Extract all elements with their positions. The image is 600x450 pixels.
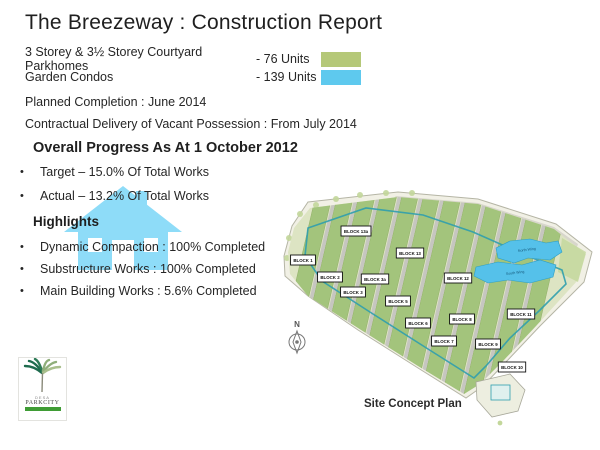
block-label: BLOCK 7	[432, 336, 457, 346]
condos-color-swatch	[321, 70, 361, 85]
block-label: BLOCK 6	[406, 318, 431, 328]
block-label: BLOCK 13	[396, 248, 423, 258]
block-label: BLOCK 1	[291, 255, 316, 265]
map-caption: Site Concept Plan	[364, 398, 462, 410]
legend-units: - 76 Units	[256, 52, 321, 66]
planned-completion-line: Planned Completion : June 2014	[25, 95, 206, 109]
block-label: BLOCK 13a	[341, 226, 371, 236]
block-label: BLOCK 9	[476, 339, 501, 349]
bullet-text: Target – 15.0% Of Total Works	[40, 165, 209, 189]
svg-text:BLOCK 13a: BLOCK 13a	[344, 229, 369, 234]
bullet-icon: •	[20, 189, 40, 213]
slide: The Breezeway : Construction Report 3 St…	[0, 0, 600, 450]
svg-text:BLOCK 13: BLOCK 13	[399, 251, 421, 256]
svg-text:BLOCK 2: BLOCK 2	[320, 275, 340, 280]
bullet-icon: •	[20, 262, 40, 284]
bullet-text: Actual – 13.2% Of Total Works	[40, 189, 209, 213]
bullet-item: • Dynamic Compaction : 100% Completed	[20, 240, 265, 262]
contractual-delivery-line: Contractual Delivery of Vacant Possessio…	[25, 117, 357, 131]
legend-row-parkhomes: 3 Storey & 3½ Storey Courtyard Parkhomes…	[25, 50, 361, 68]
bullet-icon: •	[20, 284, 40, 306]
parkhomes-color-swatch	[321, 52, 361, 67]
svg-text:BLOCK 11: BLOCK 11	[510, 312, 532, 317]
legend-label: Garden Condos	[25, 70, 256, 84]
compass-icon: N	[289, 320, 305, 353]
svg-text:BLOCK 5: BLOCK 5	[388, 299, 408, 304]
bullet-text: Main Building Works : 5.6% Completed	[40, 284, 257, 306]
block-label: BLOCK 5	[386, 296, 411, 306]
svg-text:BLOCK 12: BLOCK 12	[447, 276, 469, 281]
svg-text:BLOCK 10: BLOCK 10	[501, 365, 523, 370]
legend-units: - 139 Units	[256, 70, 321, 84]
highlights-bullets: • Dynamic Compaction : 100% Completed • …	[20, 240, 265, 306]
block-label: BLOCK 2	[318, 272, 343, 282]
block-label: BLOCK 8	[450, 314, 475, 324]
bullet-item: • Main Building Works : 5.6% Completed	[20, 284, 265, 306]
bullet-text: Substructure Works : 100% Completed	[40, 262, 256, 284]
bullet-item: • Target – 15.0% Of Total Works	[20, 165, 209, 189]
annex-building	[476, 374, 525, 425]
overall-progress-heading: Overall Progress As At 1 October 2012	[33, 140, 298, 156]
svg-text:BLOCK 8: BLOCK 8	[452, 317, 472, 322]
progress-bullets: • Target – 15.0% Of Total Works • Actual…	[20, 165, 209, 213]
bullet-item: • Substructure Works : 100% Completed	[20, 262, 265, 284]
svg-text:BLOCK 7: BLOCK 7	[434, 339, 454, 344]
highlights-heading: Highlights	[33, 214, 99, 229]
svg-text:BLOCK 9: BLOCK 9	[478, 342, 498, 347]
legend-row-condos: Garden Condos - 139 Units	[25, 68, 361, 86]
svg-text:BLOCK 6: BLOCK 6	[408, 321, 428, 326]
palm-tree-icon	[20, 358, 65, 394]
logo-text-line2: PARKCITY	[25, 400, 59, 406]
developer-logo: DESA PARKCITY	[18, 357, 67, 421]
block-label: BLOCK 12	[444, 273, 471, 283]
block-label: BLOCK 11	[507, 309, 534, 319]
bullet-text: Dynamic Compaction : 100% Completed	[40, 240, 265, 262]
svg-text:BLOCK 3a: BLOCK 3a	[364, 277, 386, 282]
page-title: The Breezeway : Construction Report	[25, 11, 382, 35]
bullet-icon: •	[20, 240, 40, 262]
block-label: BLOCK 3a	[361, 274, 388, 284]
bullet-icon: •	[20, 165, 40, 189]
legend-label: 3 Storey & 3½ Storey Courtyard Parkhomes	[25, 45, 256, 73]
legend: 3 Storey & 3½ Storey Courtyard Parkhomes…	[25, 50, 361, 86]
block-label: BLOCK 3	[341, 287, 366, 297]
site-concept-plan: Car Park / Facility Deck	[278, 186, 600, 436]
block-label: BLOCK 10	[498, 362, 525, 372]
logo-green-bar	[25, 407, 61, 411]
svg-text:BLOCK 1: BLOCK 1	[293, 258, 313, 263]
bullet-item: • Actual – 13.2% Of Total Works	[20, 189, 209, 213]
svg-text:BLOCK 3: BLOCK 3	[343, 290, 363, 295]
compass-n-label: N	[294, 320, 300, 329]
